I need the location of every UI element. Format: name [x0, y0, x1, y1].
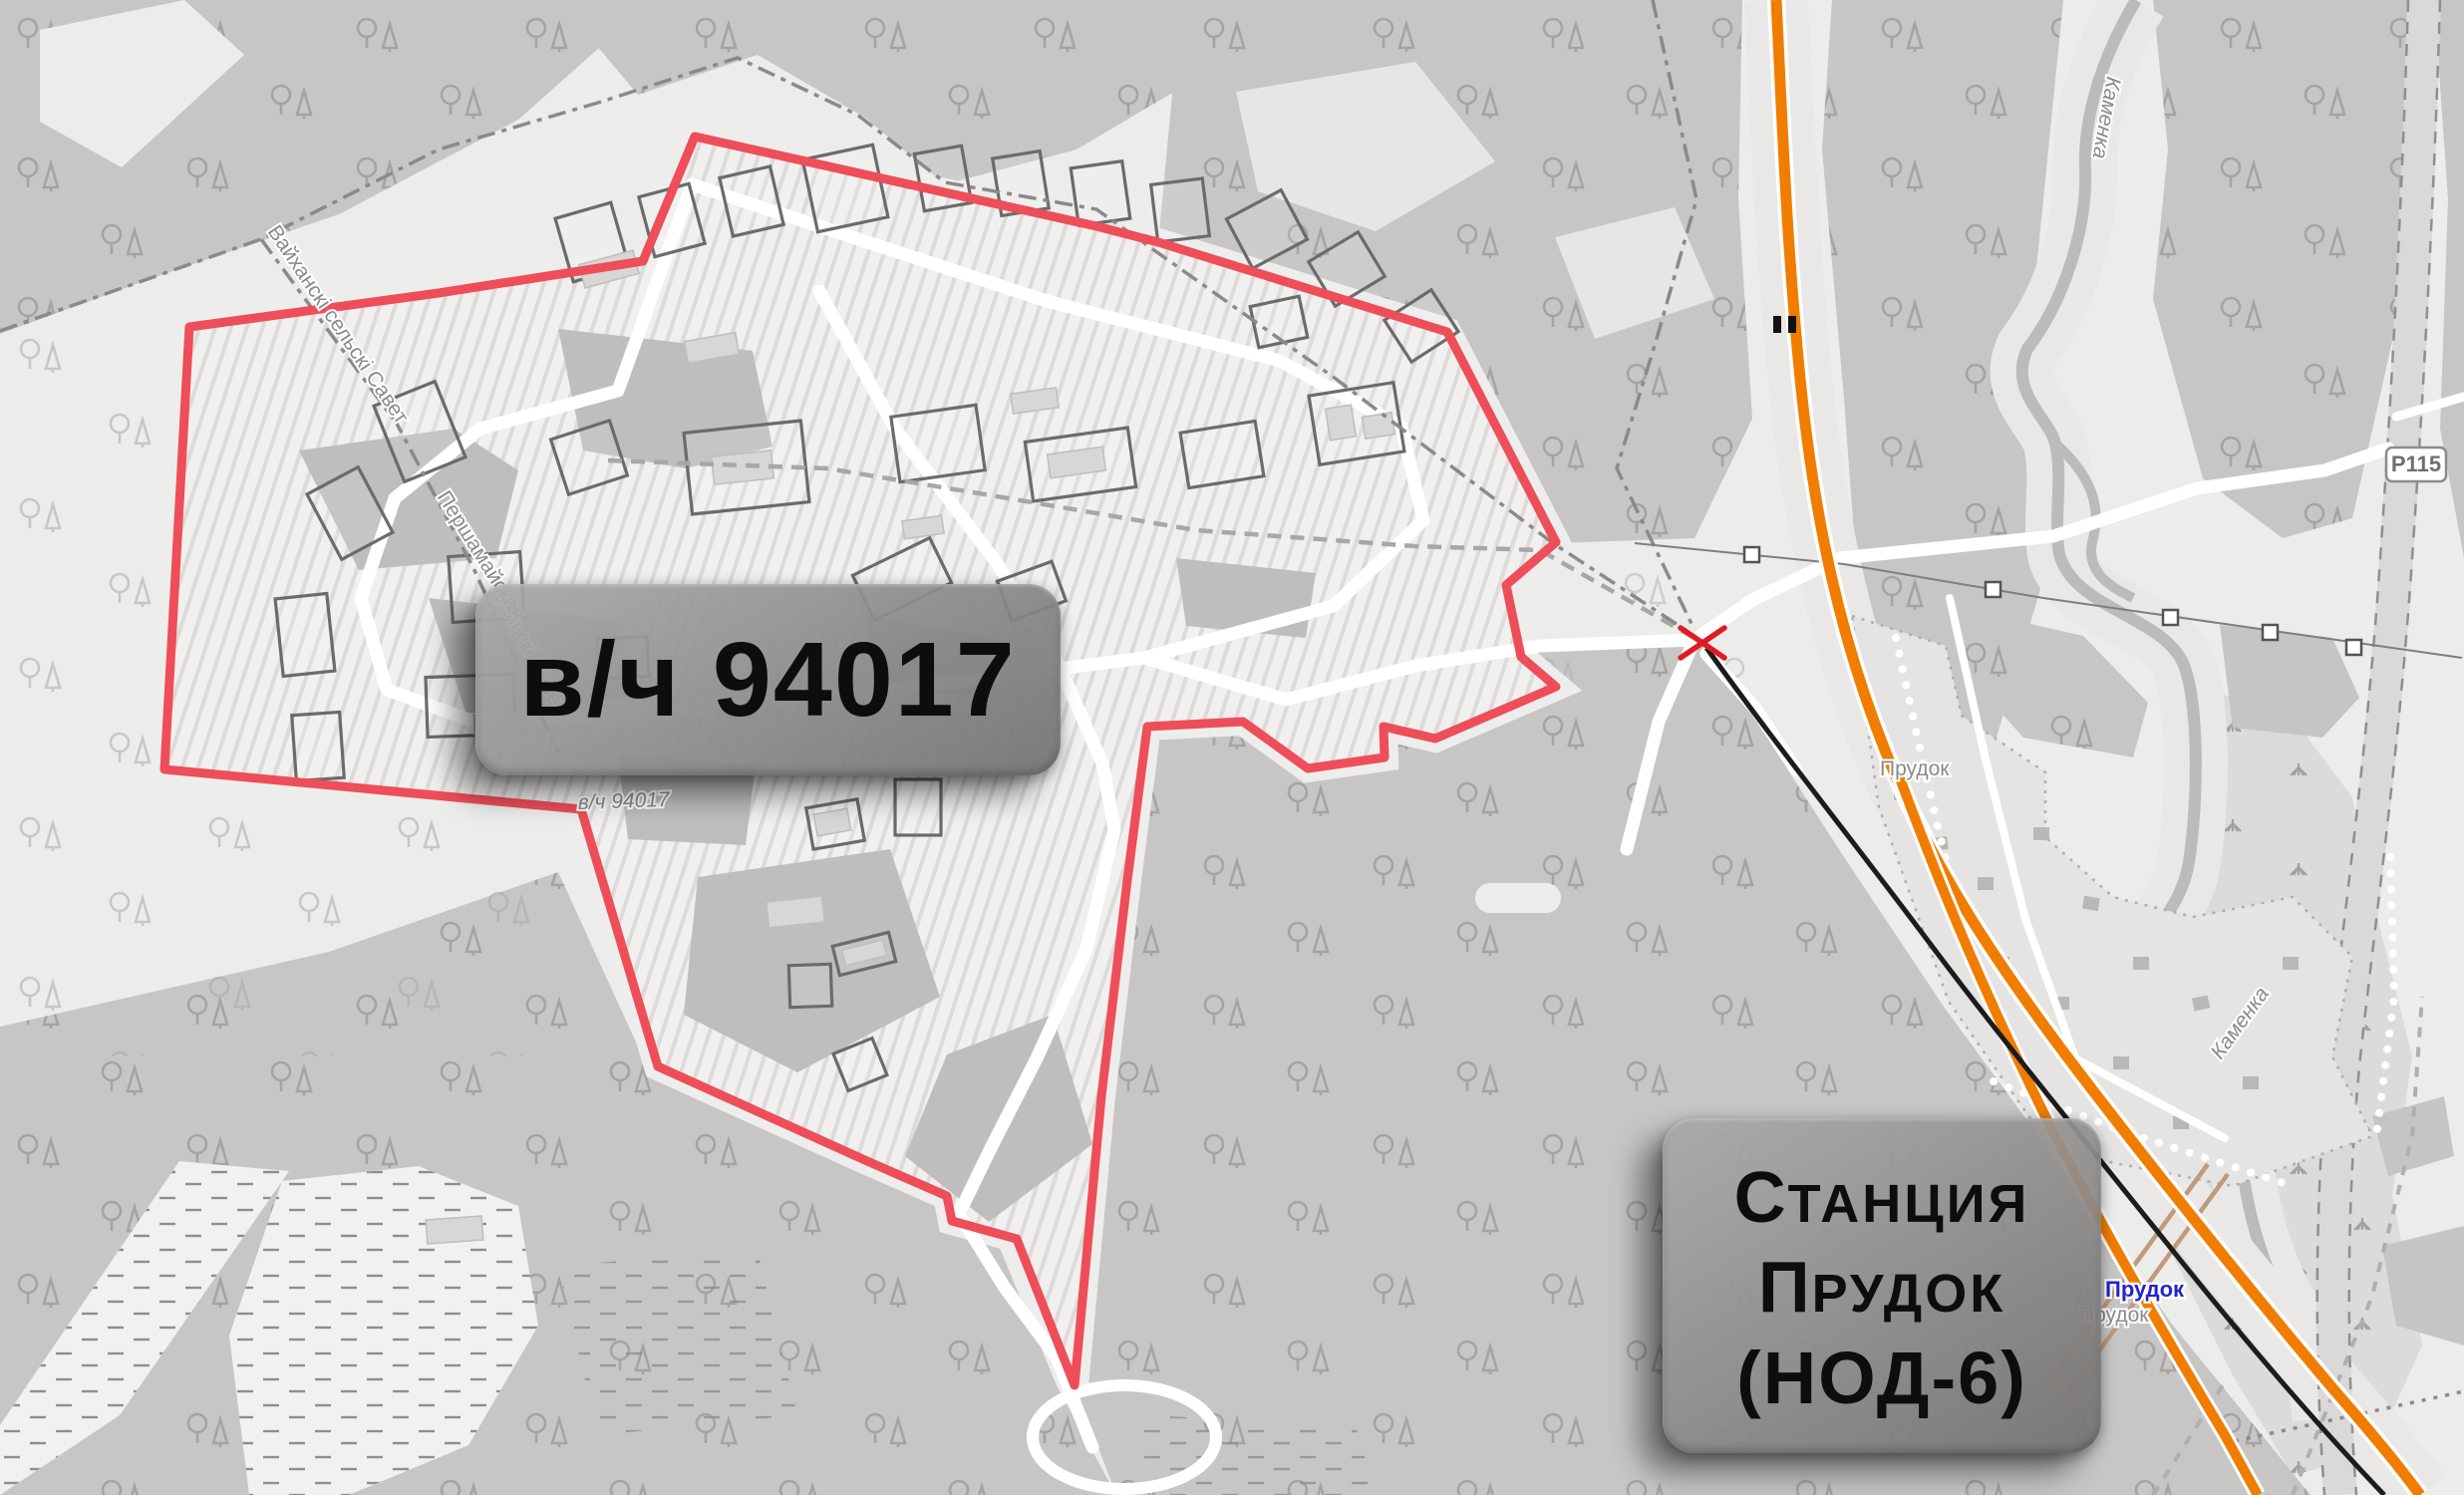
station-line-1: СТАНЦИЯ: [1734, 1162, 2030, 1234]
unit-small-label: в/ч 94017: [577, 788, 671, 814]
station-annotation-box: СТАНЦИЯ ПРУДОК (НОД-6): [1663, 1118, 2101, 1453]
village-label: Прудок: [1880, 757, 1950, 780]
unit-annotation-box: в/ч 94017: [475, 584, 1061, 775]
road-ref-text: Р115: [2391, 451, 2441, 476]
road-ref-badge: Р115: [2386, 448, 2446, 481]
unit-annotation-text: в/ч 94017: [519, 620, 1016, 741]
station-line-2: ПРУДОК: [1758, 1252, 2005, 1324]
station-blue-label: Прудок: [2105, 1277, 2185, 1302]
map-canvas[interactable]: Р115 в/ч 94017 Вайханскі сельскі Савет с…: [0, 0, 2464, 1495]
station-line-3: (НОД-6): [1736, 1342, 2027, 1415]
